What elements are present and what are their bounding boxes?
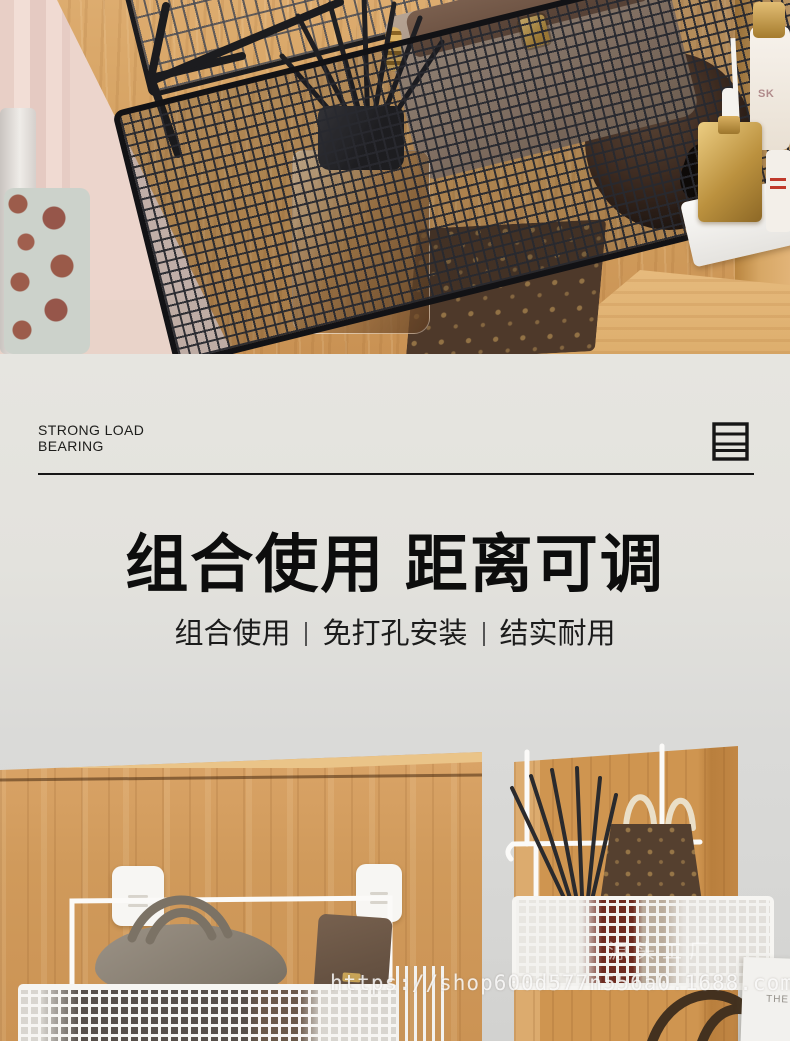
subtitle-item-3: 结实耐用: [500, 618, 616, 650]
factory-watermark: 源头工厂: [608, 935, 716, 964]
product-detail-image: SK STRONG LOAD BEARING 组合使用 距离可调 组合使用免打孔…: [0, 0, 790, 1041]
subtitle-item-1: 组合使用: [174, 618, 290, 650]
subtitle-item-2: 免打孔安装: [322, 618, 467, 650]
adhesive-wall-pad: [356, 864, 402, 922]
card-label: THE: [766, 994, 789, 1006]
divider-rule: [38, 473, 754, 475]
main-heading: 组合使用 距离可调: [0, 514, 790, 605]
adhesive-wall-pad: [112, 866, 164, 926]
giraffe-print-fabric: [4, 188, 90, 354]
subtitle-divider: [305, 622, 307, 646]
dropper-collar: [718, 116, 740, 134]
white-cosmetic-tube: [766, 150, 790, 232]
top-photo-black-basket-scene: SK: [0, 0, 790, 354]
monogram-handbag: [600, 824, 702, 902]
gold-serum-bottle: [698, 122, 762, 222]
subtitle: 组合使用免打孔安装结实耐用: [0, 610, 790, 652]
shop-url-watermark: https://shop600d577n556a0.1688.com: [330, 971, 790, 995]
feature-banner: STRONG LOAD BEARING 组合使用 距离可调 组合使用免打孔安装结…: [0, 354, 790, 740]
subtitle-divider: [483, 622, 485, 646]
bottom-photo-white-basket-scene: THE 源头工厂 https://shop600d577n556a0.1688.…: [0, 740, 790, 1041]
gold-bottle-cap: [753, 2, 785, 38]
eyebrow-text: STRONG LOAD BEARING: [38, 422, 168, 454]
shelf-rack-icon: [712, 422, 749, 461]
white-product-card: THE: [741, 957, 790, 1041]
essence-bottle-label: SK: [758, 88, 774, 100]
